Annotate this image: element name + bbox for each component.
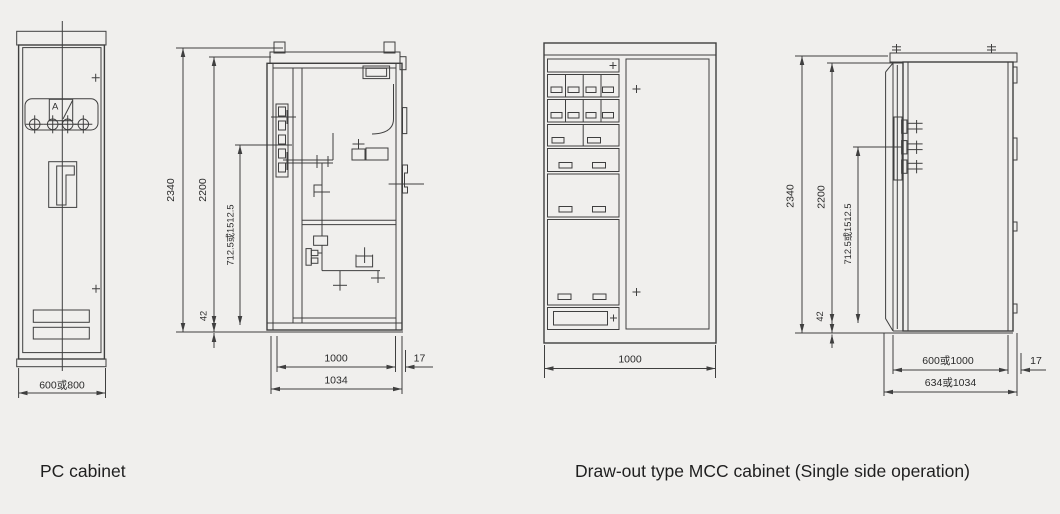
- drawer: [548, 125, 620, 147]
- dim-label-width: 600或800: [39, 380, 85, 392]
- dim-label-unit-height: 712.5或1512.5: [842, 204, 853, 265]
- plus-mark-icon: [633, 288, 641, 296]
- lifting-bolt-icon: [987, 44, 996, 53]
- latch-block: [403, 165, 408, 193]
- door-swing-arc: [372, 84, 394, 134]
- dim-label-outer-depth: 634或1034: [925, 377, 977, 389]
- drawer: [548, 75, 620, 98]
- lifting-bolt-icon: [892, 44, 901, 53]
- dim-label-base-height: 42: [199, 311, 209, 321]
- drawer: [548, 100, 620, 123]
- depth-dimensions: 1000 1034 17: [271, 336, 433, 394]
- drawer: [548, 220, 620, 306]
- drawer: [548, 59, 620, 72]
- dim-label-total-height: 2340: [165, 178, 177, 202]
- meter-panel: A: [25, 99, 98, 134]
- mcc-side-view: 2340 2200 712.5或1512.5 42: [785, 44, 1047, 396]
- dim-label-outer-depth: 1034: [324, 375, 348, 387]
- lifting-lug: [384, 42, 395, 53]
- base-plinth: [17, 359, 106, 367]
- plus-mark-icon: [610, 62, 617, 69]
- open-door: [886, 63, 903, 331]
- pc-side-view: 2340 2200 712.5或1512.5 42: [165, 42, 433, 394]
- plus-mark-icon: [92, 285, 100, 293]
- dim-label-unit-height: 712.5或1512.5: [225, 205, 236, 266]
- internal-wiring: [306, 163, 385, 291]
- top-rail: [890, 53, 1017, 62]
- plus-mark-icon: [610, 315, 617, 322]
- cable-compartment-door: [626, 59, 709, 329]
- drawer: [548, 174, 620, 217]
- dim-label-door: 17: [414, 353, 426, 365]
- plus-mark-icon: [92, 74, 100, 82]
- width-dimension: 1000: [545, 345, 716, 378]
- dim-label-width: 1000: [618, 354, 642, 366]
- drawing-canvas: A 600或800: [0, 0, 1060, 514]
- width-dimension: 600或800: [19, 368, 106, 398]
- drawer: [548, 149, 620, 172]
- mcc-cabinet-caption: Draw-out type MCC cabinet (Single side o…: [575, 461, 970, 482]
- indicator-lamp-icon: [74, 115, 92, 133]
- indicator-lamp-icon: [59, 115, 77, 133]
- mcc-front-view: 1000: [544, 43, 716, 378]
- hinge-block: [403, 108, 407, 134]
- top-rail: [270, 52, 400, 63]
- dim-label-frame-height: 2200: [816, 185, 828, 209]
- pc-front-view: A 600或800: [17, 21, 106, 398]
- height-dimensions: 2340 2200 712.5或1512.5 42: [785, 56, 1014, 348]
- dim-label-frame-height: 2200: [197, 178, 209, 202]
- dim-label-inner-depth: 1000: [324, 353, 348, 365]
- dim-label-total-height: 2340: [785, 184, 797, 208]
- depth-dimensions: 600或1000 634或1034 17: [884, 333, 1046, 396]
- indicator-lamp-icon: [26, 115, 44, 133]
- engineering-drawing-page: A 600或800: [0, 0, 1060, 514]
- drawer-column: [548, 59, 620, 330]
- top-cap: [17, 31, 106, 45]
- dim-label-door: 17: [1030, 355, 1042, 367]
- drawer: [548, 308, 620, 330]
- pc-cabinet-caption: PC cabinet: [40, 461, 126, 482]
- cabinet-body: [267, 63, 402, 330]
- height-dimensions: 2340 2200 712.5或1512.5 42: [165, 48, 403, 348]
- plus-mark-icon: [633, 85, 641, 93]
- vent-louver: [33, 310, 89, 322]
- cabinet-body: [544, 43, 716, 343]
- ammeter-label: A: [52, 102, 59, 113]
- internal-apparatus: [293, 66, 424, 318]
- cabinet-body: [19, 45, 105, 359]
- cabinet-body: [903, 62, 1013, 331]
- vent-louver: [33, 327, 89, 339]
- dim-label-inner-depth: 600或1000: [922, 355, 974, 367]
- dim-label-base-height: 42: [815, 311, 825, 321]
